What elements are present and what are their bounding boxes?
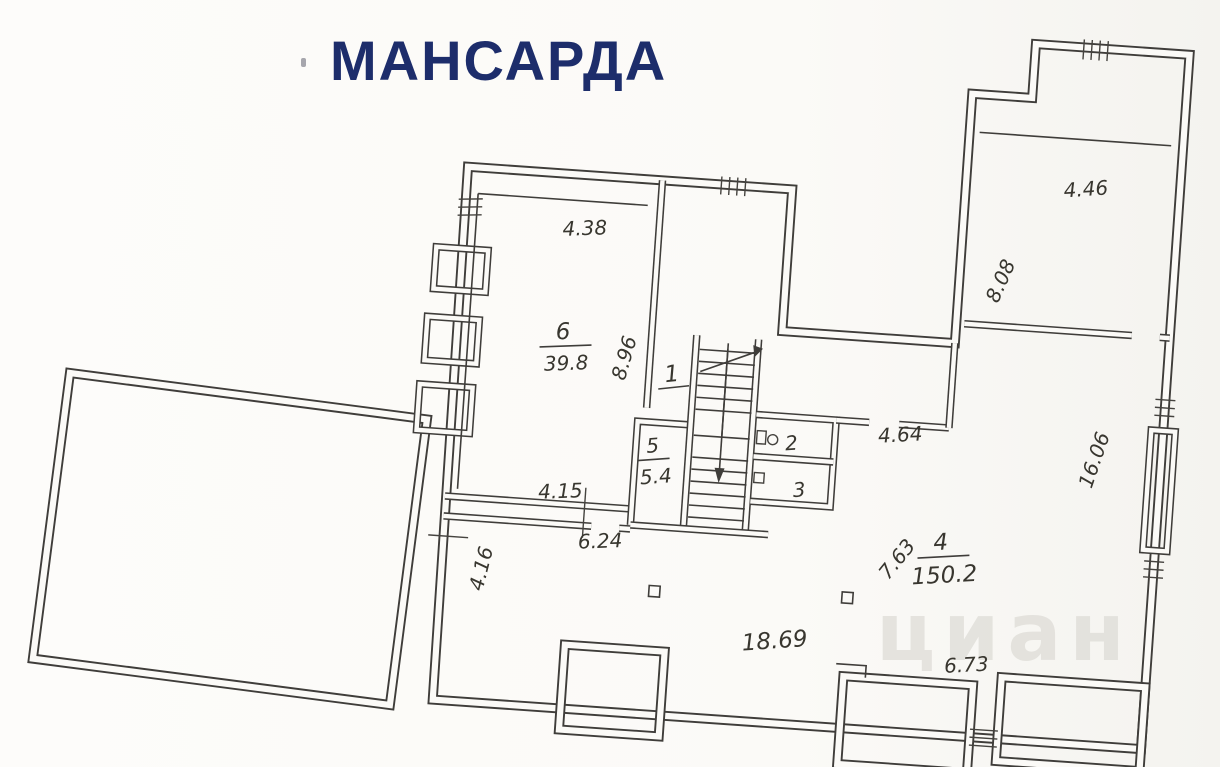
room4-number: 4 — [933, 529, 949, 556]
room1-number: 1 — [663, 361, 680, 388]
room2-number: 2 — [784, 431, 798, 456]
column — [841, 592, 853, 604]
wing-inner-line — [980, 132, 1172, 145]
dim-corridor-east: 4.64 — [877, 421, 923, 447]
room4-label: 4 150.2 — [909, 528, 978, 590]
dim-passage-south: 6.24 — [577, 528, 622, 554]
sink-icon — [756, 431, 766, 445]
room5-area: 5.4 — [639, 463, 672, 489]
floor-plan-drawing: циан — [0, 0, 1220, 767]
dim-room6-top: 4.38 — [562, 215, 607, 241]
dim-room6-side: 8.96 — [606, 333, 641, 382]
dim-wing-right: 16.06 — [1073, 429, 1114, 491]
dim-room4-southeast: 6.73 — [943, 652, 989, 678]
dim-room6-south: 4.15 — [538, 478, 583, 504]
dim-wing-top: 4.46 — [1063, 175, 1109, 202]
watermark: циан — [876, 586, 1133, 679]
dim-room4-width: 18.69 — [741, 626, 809, 657]
room5-number: 5 — [645, 433, 659, 458]
room6-area: 39.8 — [543, 350, 588, 376]
room4-area: 150.2 — [911, 561, 978, 590]
room5-label: 5 5.4 — [636, 432, 673, 489]
toilet-icon — [767, 434, 778, 445]
dim-wing-left: 8.08 — [980, 256, 1020, 306]
terrace — [33, 373, 427, 705]
room1-label: 1 — [656, 360, 690, 389]
basin-icon — [754, 472, 765, 483]
scanned-floor-plan-page: МАНСАРДА циан — [0, 0, 1220, 767]
room3-number: 3 — [792, 477, 806, 502]
dim-left-lower: 4.16 — [464, 544, 498, 593]
column — [648, 585, 660, 597]
room6-number: 6 — [555, 319, 571, 345]
room6-label: 6 39.8 — [539, 318, 593, 376]
